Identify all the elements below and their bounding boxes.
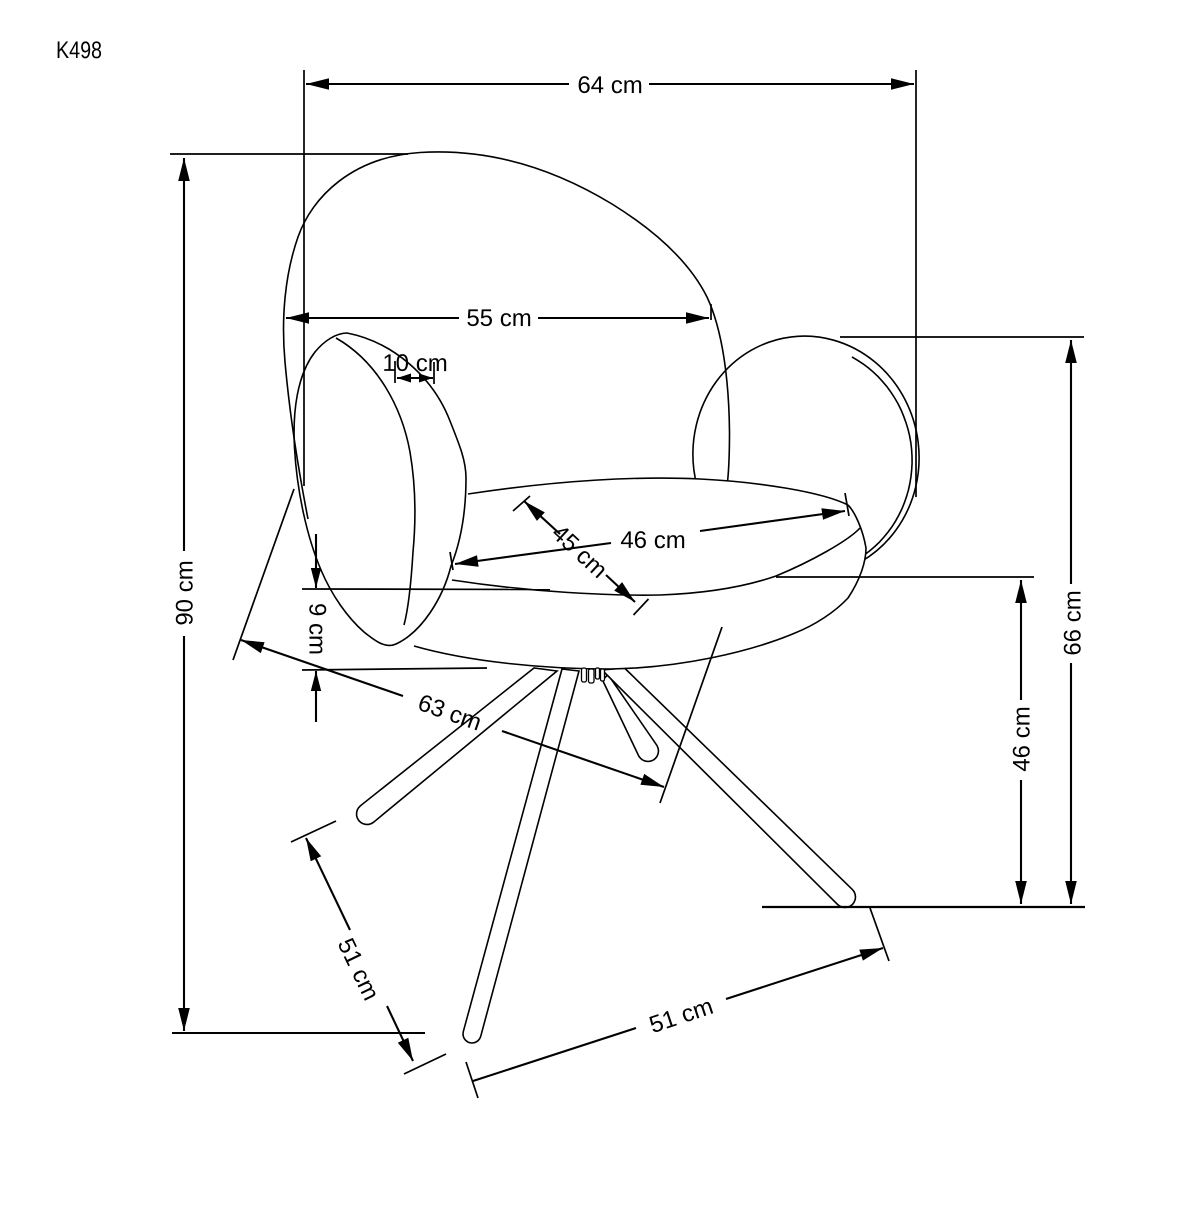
svg-text:10 cm: 10 cm <box>382 350 447 377</box>
svg-text:55 cm: 55 cm <box>466 305 531 332</box>
svg-text:46 cm: 46 cm <box>620 527 685 554</box>
svg-text:90 cm: 90 cm <box>172 560 199 625</box>
svg-text:64 cm: 64 cm <box>577 72 642 99</box>
svg-text:K498: K498 <box>56 37 102 64</box>
svg-text:9 cm: 9 cm <box>304 603 331 655</box>
svg-text:66 cm: 66 cm <box>1060 590 1087 655</box>
svg-text:46 cm: 46 cm <box>1009 706 1036 771</box>
